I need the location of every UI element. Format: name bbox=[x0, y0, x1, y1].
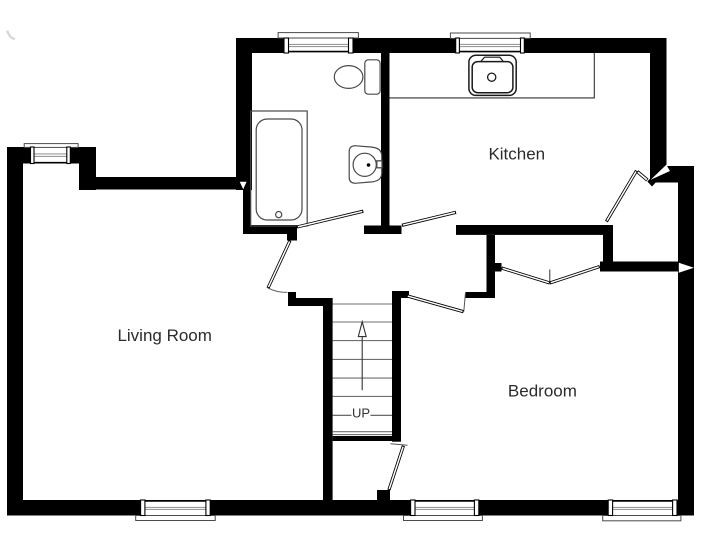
svg-text:Kitchen: Kitchen bbox=[488, 145, 545, 164]
svg-text:UP: UP bbox=[352, 406, 370, 421]
svg-text:Bedroom: Bedroom bbox=[508, 381, 577, 400]
svg-text:Living Room: Living Room bbox=[117, 326, 212, 345]
